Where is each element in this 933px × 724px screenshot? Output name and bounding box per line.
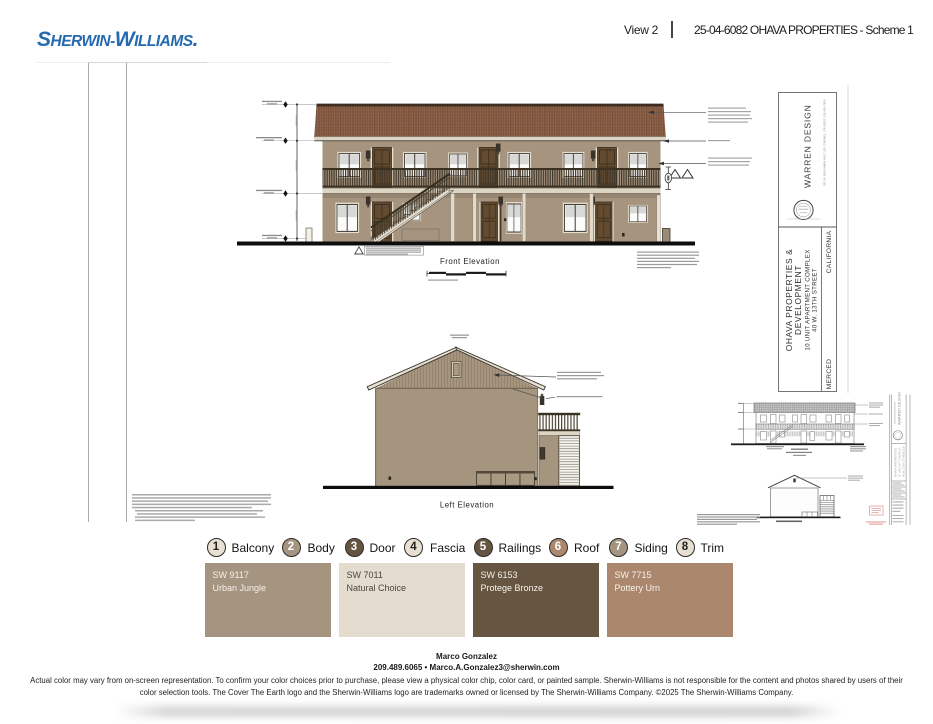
svg-text:555 W. BENJAMIN HOLT DR. CARME: 555 W. BENJAMIN HOLT DR. CARMEL, CA 9392… xyxy=(823,99,827,186)
svg-text:40 W. 13TH STREET: 40 W. 13TH STREET xyxy=(812,268,819,332)
svg-text:10 UNIT APARTMENT COMPLEX: 10 UNIT APARTMENT COMPLEX xyxy=(805,249,812,350)
svg-text:OHAVA PROPERTIES: OHAVA PROPERTIES xyxy=(894,448,898,477)
svg-text:CALIFORNIA: CALIFORNIA xyxy=(826,230,833,273)
svg-text:Front Elevation: Front Elevation xyxy=(440,257,500,266)
svg-text:WARREN DESIGN: WARREN DESIGN xyxy=(803,104,813,188)
svg-text:DEVELOPMENT: DEVELOPMENT xyxy=(793,265,803,335)
svg-text:WARREN DESIGN: WARREN DESIGN xyxy=(898,392,902,425)
svg-text:40 W. 13TH ST MERCED: 40 W. 13TH ST MERCED xyxy=(902,446,906,477)
svg-text:MERCED: MERCED xyxy=(826,359,833,389)
svg-text:Left Elevation: Left Elevation xyxy=(440,501,494,510)
svg-text:10 UNIT APT COMPLEX: 10 UNIT APT COMPLEX xyxy=(898,447,902,477)
